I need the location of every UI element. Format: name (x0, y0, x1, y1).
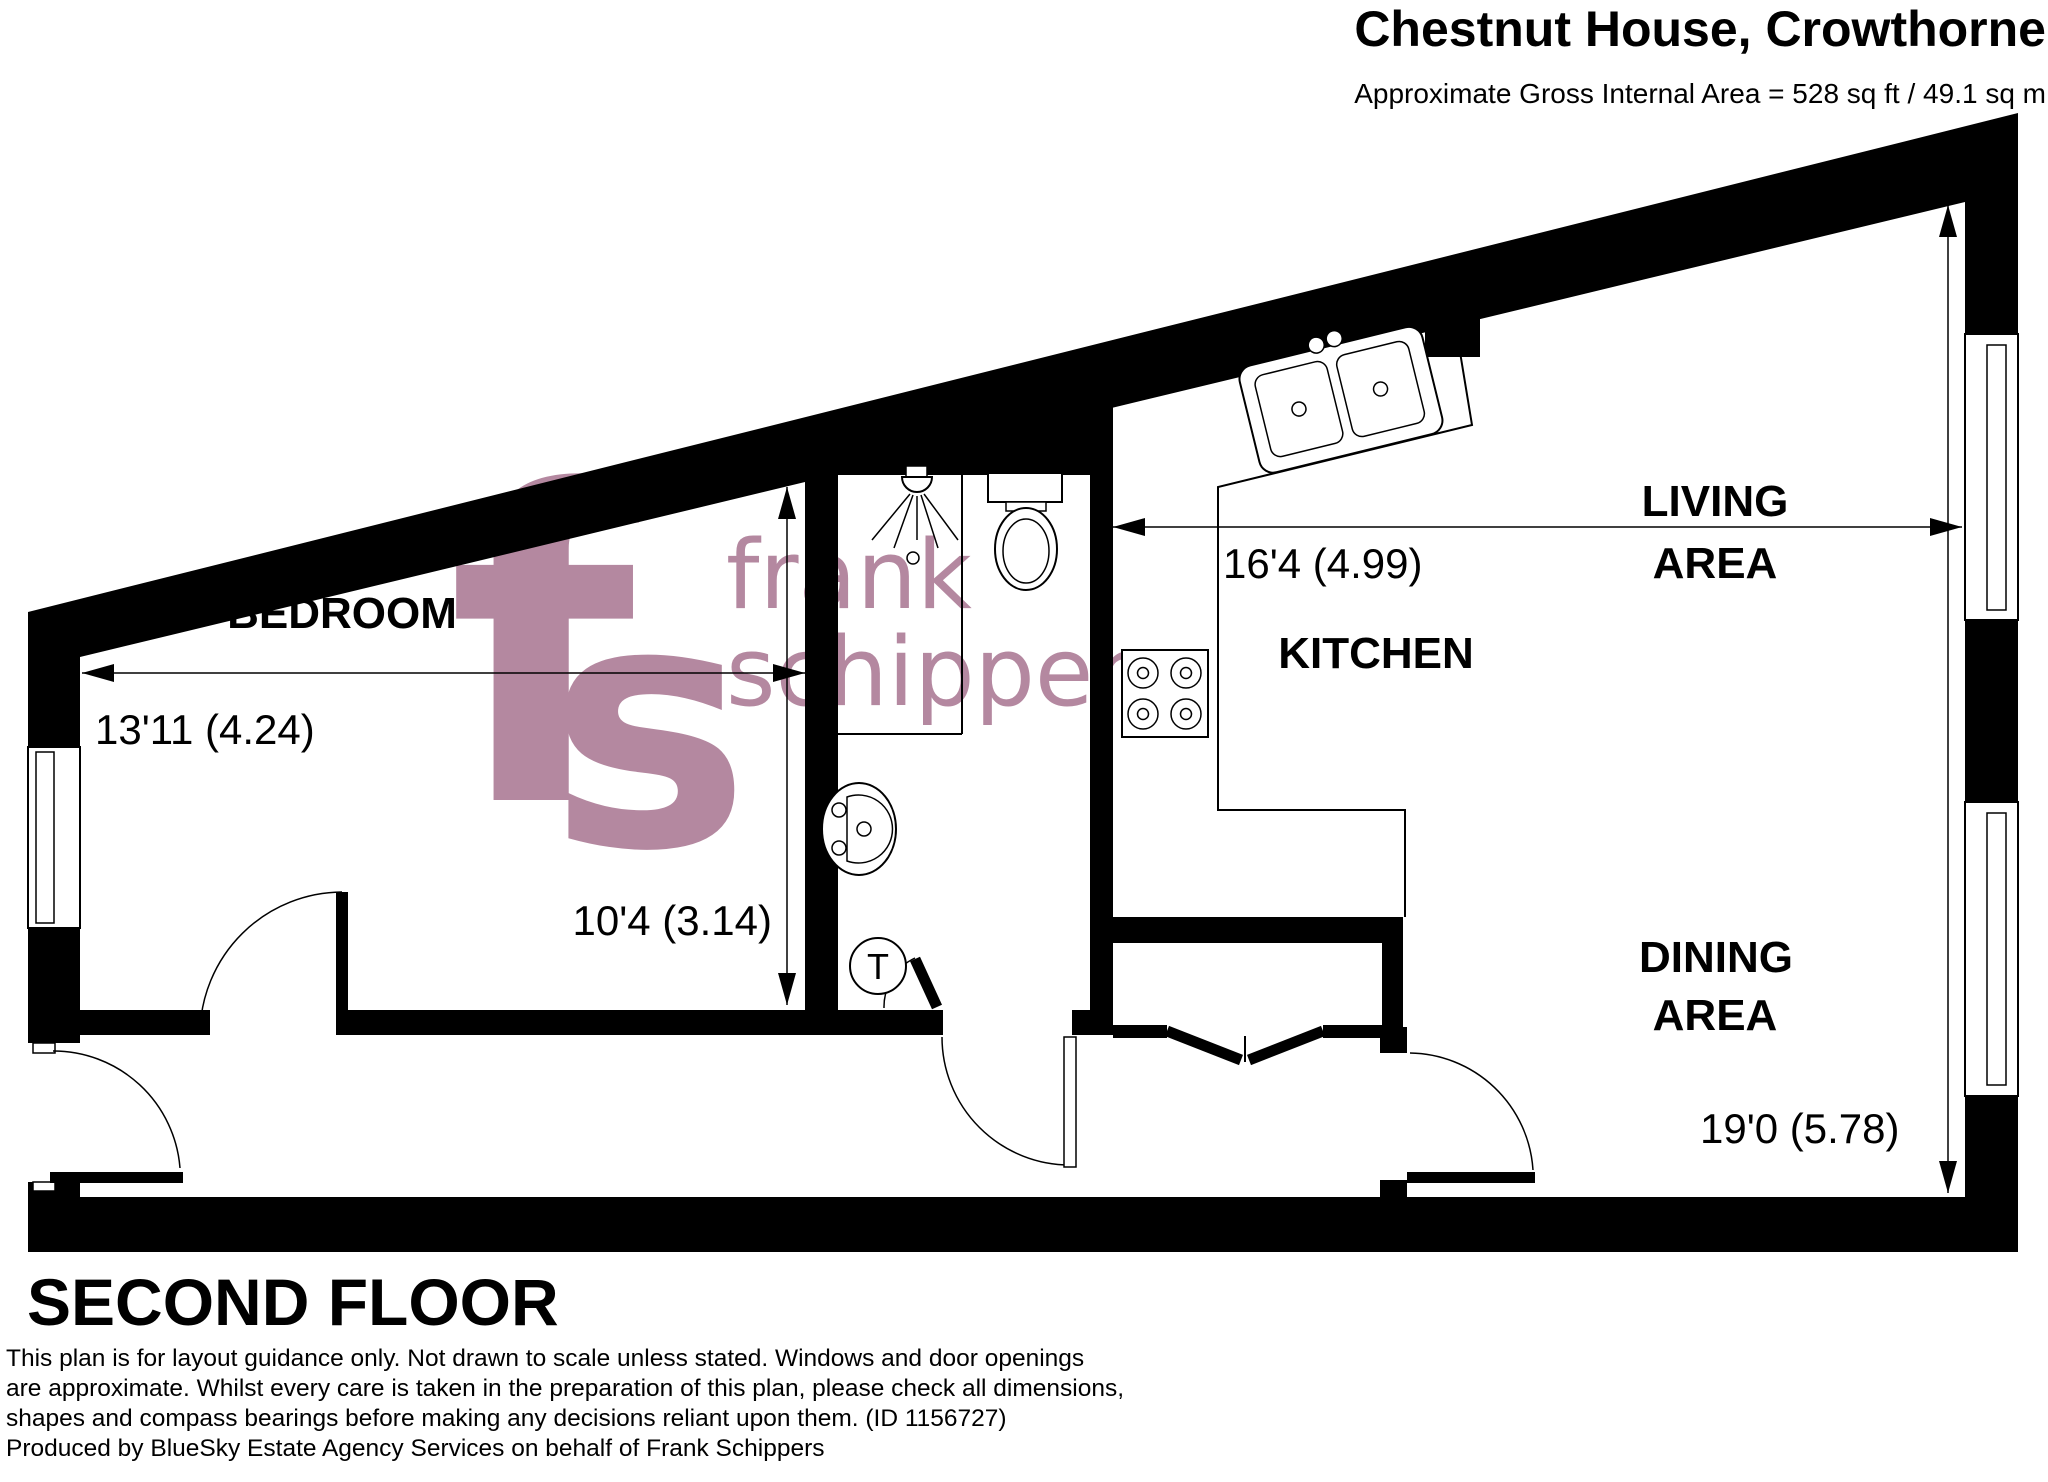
kitchen-fixtures (1122, 310, 1472, 917)
door-swing-arc (1410, 1053, 1533, 1170)
door-cupboard-double (1167, 1031, 1323, 1062)
door-leaf (1407, 1172, 1535, 1183)
arrow-down-icon (1939, 1161, 1957, 1193)
wall-dining-jamb-bottom (1380, 1180, 1407, 1197)
wall-bathroom-left (805, 462, 838, 1035)
disclaimer-line: This plan is for layout guidance only. N… (6, 1345, 1084, 1372)
hob-burner-center (1181, 668, 1192, 679)
arrow-up-icon (1939, 205, 1957, 237)
door-leaf (1249, 1031, 1323, 1060)
wall-kitchen-south (1113, 917, 1403, 943)
arrow-left-icon (1113, 518, 1145, 536)
window-right-living (1965, 334, 2018, 620)
toilet-cistern (988, 473, 1062, 502)
door-hallway (942, 1037, 1076, 1167)
hob-burner-center (1138, 709, 1149, 720)
door-leaf (1064, 1037, 1076, 1167)
floorplan-page: f s frank schippers (0, 0, 2048, 1482)
watermark-logo-s: s (548, 530, 750, 926)
disclaimer-line: shapes and compass bearings before makin… (6, 1405, 1007, 1432)
wall-bottom (28, 1197, 2018, 1252)
door-leaf (50, 1172, 183, 1183)
wall-bathroom-right (1090, 398, 1113, 1035)
window-glazing (1987, 813, 2006, 1085)
arrow-down-icon (778, 973, 796, 1005)
dimension-dining-depth: 19'0 (5.78) (1700, 205, 1957, 1193)
room-label-dining-1: DINING (1639, 933, 1793, 982)
dimension-kitchen-living-width: 16'4 (4.99) (1113, 518, 1962, 587)
dimension-label: 19'0 (5.78) (1700, 1105, 1899, 1152)
hob-icon (1122, 650, 1208, 737)
wall-left-upper (28, 612, 80, 747)
toilet-icon (988, 473, 1062, 590)
room-label-living-1: LIVING (1642, 477, 1789, 526)
basin-tap (832, 803, 846, 817)
arrow-right-icon (1930, 518, 1962, 536)
shower-drain (907, 552, 919, 564)
dimension-label: 10'4 (3.14) (573, 897, 772, 944)
door-leaf (336, 892, 348, 1035)
basin-tap (832, 841, 846, 855)
window-glazing (1987, 345, 2006, 610)
wall-right-pier (1965, 620, 2018, 802)
wall-hall-stub (1072, 1010, 1113, 1035)
basin-drain (857, 822, 871, 836)
wall-bedroom-south-right (342, 1010, 943, 1035)
window-right-dining (1965, 802, 2018, 1096)
room-label-dining-2: AREA (1653, 991, 1778, 1040)
arrow-up-icon (778, 487, 796, 519)
door-jamb (33, 1182, 55, 1191)
room-label-living-2: AREA (1653, 539, 1778, 588)
door-jamb (33, 1043, 55, 1053)
window-glazing (36, 752, 54, 923)
page-title: Chestnut House, Crowthorne (1354, 1, 2046, 57)
wall-cupboard-front-left (1113, 1025, 1167, 1038)
basin-icon (822, 783, 896, 875)
shower-head (902, 477, 932, 492)
toilet-bowl-inner (1003, 519, 1049, 583)
wall-bedroom-south-left (28, 1010, 210, 1035)
wall-kitchen-pier (1425, 298, 1480, 357)
door-entrance (33, 1043, 183, 1191)
tank-symbol: T (850, 938, 906, 994)
window-left-bedroom (28, 747, 80, 928)
door-swing-arc (200, 892, 342, 1032)
dimension-label: 13'11 (4.24) (95, 706, 315, 753)
door-swing-arc (53, 1051, 180, 1168)
wall-right-top (1965, 140, 2018, 334)
hob-burner-center (1181, 709, 1192, 720)
door-bedroom (200, 892, 348, 1035)
wall-dining-jamb-top (1380, 1027, 1407, 1053)
shower-arm (906, 466, 927, 477)
disclaimer-line: Produced by BlueSky Estate Agency Servic… (6, 1435, 824, 1462)
door-swing-arc (942, 1037, 1070, 1165)
tank-label: T (867, 946, 889, 987)
page-subtitle: Approximate Gross Internal Area = 528 sq… (1354, 78, 2046, 109)
disclaimer-line: are approximate. Whilst every care is ta… (6, 1375, 1124, 1402)
door-leaf (915, 959, 937, 1007)
arrow-left-icon (82, 664, 114, 682)
dimension-label: 16'4 (4.99) (1223, 540, 1422, 587)
door-dining (1407, 1053, 1535, 1183)
hob-burner-center (1138, 668, 1149, 679)
footer: SECOND FLOOR This plan is for layout gui… (6, 1265, 1124, 1462)
room-label-bedroom: BEDROOM (227, 589, 457, 638)
floorplan-svg: f s frank schippers (0, 0, 2048, 1482)
door-leaf (1167, 1031, 1241, 1060)
room-label-kitchen: KITCHEN (1278, 629, 1474, 678)
floor-label: SECOND FLOOR (27, 1265, 559, 1339)
header: Chestnut House, Crowthorne Approximate G… (1354, 1, 2046, 109)
